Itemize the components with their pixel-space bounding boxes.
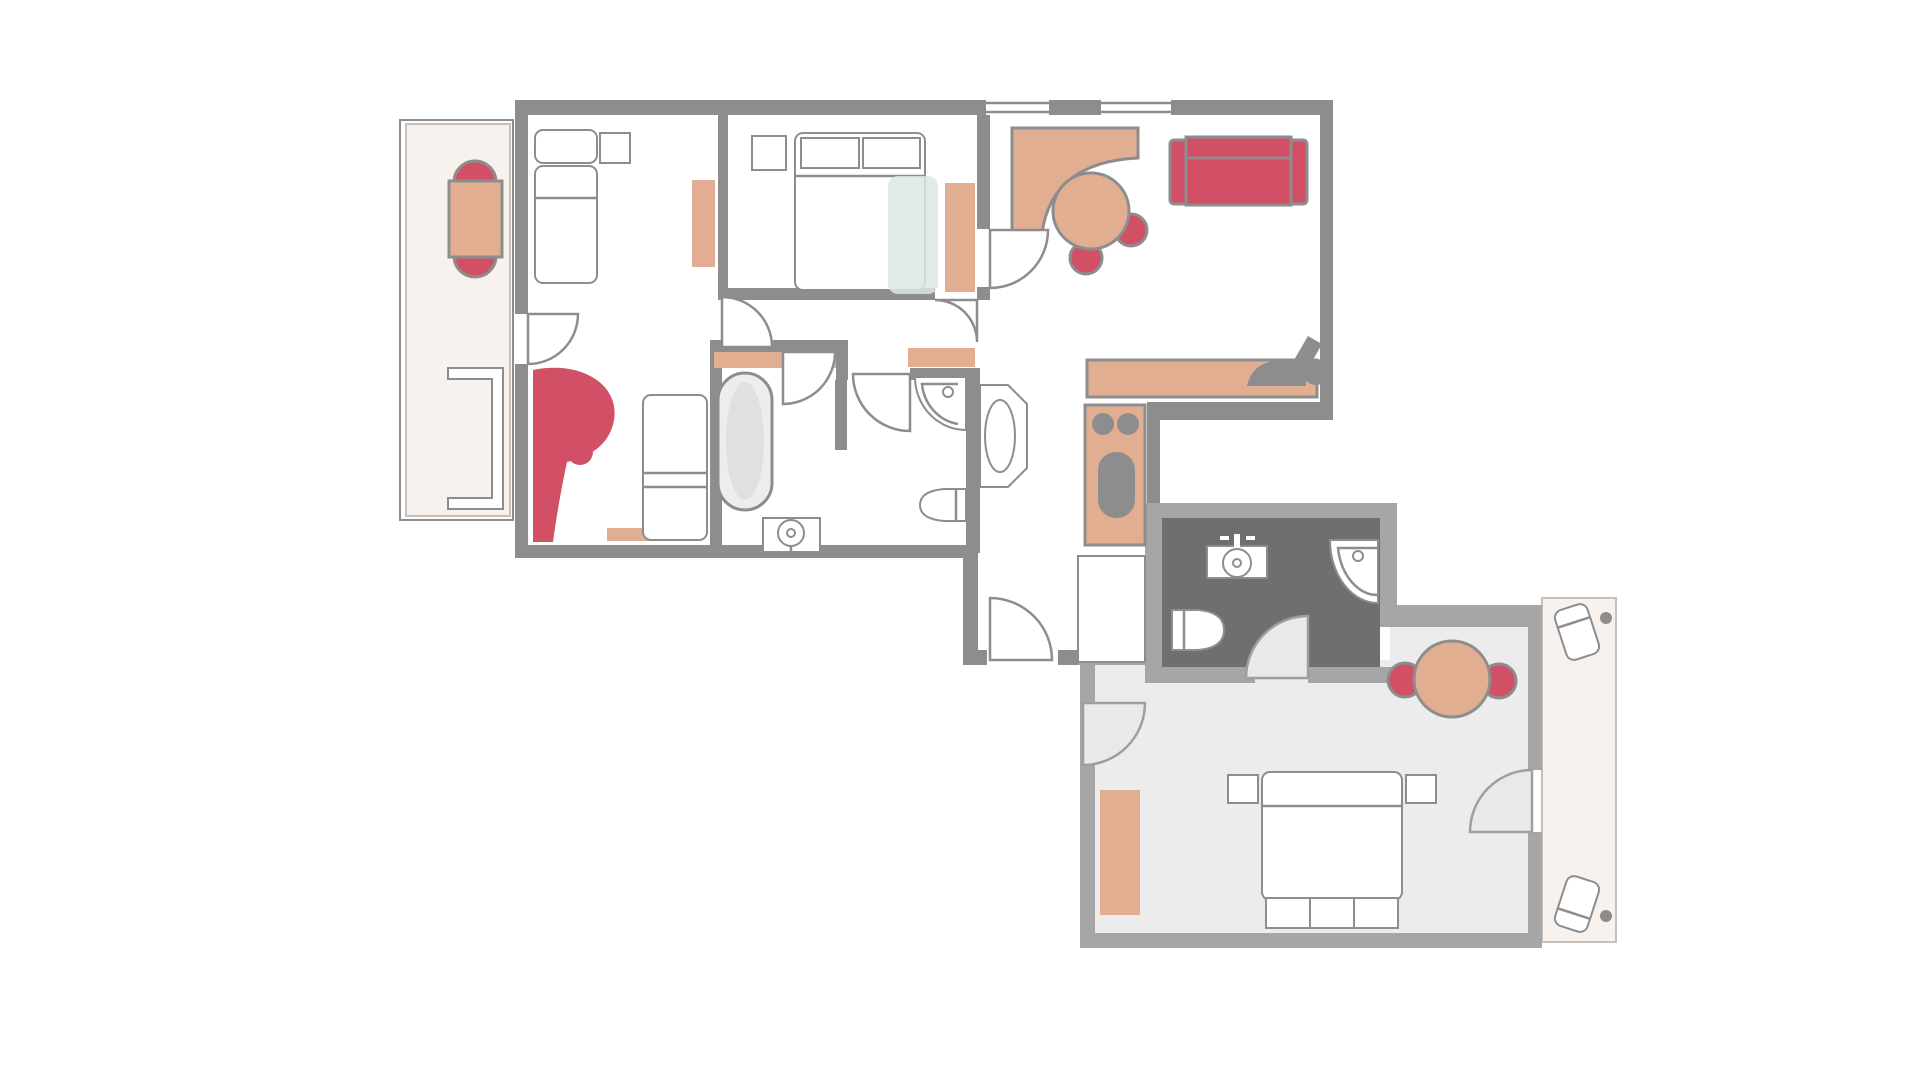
wall-segment — [1308, 667, 1397, 683]
pillow-icon — [801, 138, 859, 168]
shower-icon — [915, 377, 966, 430]
round-table-icon — [1053, 173, 1129, 249]
wall-segment — [1528, 832, 1542, 948]
door-entry-upper — [990, 598, 1052, 660]
window-icon — [1101, 100, 1171, 115]
floor-plan-drawing — [0, 0, 1920, 1080]
bathtub-icon — [718, 373, 772, 510]
floor-plan-canvas — [0, 0, 1920, 1080]
nightstand-icon — [1228, 775, 1258, 803]
pillow-icon — [863, 138, 920, 168]
bench-icon — [1354, 898, 1398, 928]
wall-segment — [1049, 100, 1101, 115]
wall-segment — [1162, 667, 1255, 683]
side-table-icon — [1600, 612, 1612, 624]
toilet-icon — [920, 489, 966, 521]
wall-segment — [1147, 402, 1333, 420]
wall-segment — [718, 115, 728, 297]
nightstand-icon — [600, 133, 630, 163]
throw-blanket-icon — [888, 176, 938, 294]
toilet-icon — [1172, 610, 1224, 650]
wall-segment — [1380, 518, 1397, 613]
wall-segment — [1380, 605, 1528, 627]
kitchen-unit — [1085, 405, 1145, 545]
entry-closet — [1078, 556, 1145, 662]
wall-segment — [515, 100, 986, 115]
dining-table-icon — [449, 181, 502, 257]
bench-icon — [1310, 898, 1354, 928]
hallway-elements — [908, 348, 975, 367]
wall-segment — [1080, 652, 1095, 948]
living-room-furniture — [1012, 128, 1329, 397]
bed-icon — [535, 130, 597, 283]
rug-icon — [945, 183, 975, 292]
wall-segment — [977, 287, 990, 300]
wall-segment — [963, 545, 978, 652]
side-table-icon — [1600, 910, 1612, 922]
wall-segment — [515, 545, 975, 558]
terrace-lower — [1542, 598, 1616, 942]
wall-segment — [1080, 933, 1542, 948]
wall-segment — [977, 115, 990, 229]
round-table-icon — [1414, 641, 1490, 717]
bed-icon — [643, 395, 707, 540]
accent-chair-icon — [567, 439, 593, 465]
door-balcony — [528, 314, 578, 364]
wall-segment — [966, 368, 980, 553]
door-living-room — [990, 230, 1048, 288]
bedroom-2-furniture — [752, 133, 975, 294]
wall-segment — [1058, 650, 1080, 665]
wall-segment — [515, 364, 528, 558]
nightstand-icon — [752, 136, 786, 170]
rug-icon — [692, 180, 715, 267]
wall-segment — [1171, 100, 1333, 115]
nightstand-icon — [1406, 775, 1436, 803]
door-bathtub-area — [783, 352, 835, 404]
rug-icon — [908, 348, 975, 367]
wall-segment — [836, 340, 848, 380]
door-bedroom-1 — [722, 297, 772, 347]
washbasin-bay-icon — [980, 385, 1027, 487]
sink-icon — [1098, 452, 1135, 518]
rug-icon — [1100, 790, 1140, 915]
window-icon — [986, 100, 1049, 115]
door-bedroom-2-hall — [935, 300, 977, 342]
burner-icon — [1117, 413, 1139, 435]
burner-icon — [1092, 413, 1114, 435]
wall-segment — [963, 650, 987, 665]
wall-segment — [1150, 503, 1397, 518]
wall-segment — [835, 380, 847, 450]
bench-icon — [1266, 898, 1310, 928]
sofa-icon — [1170, 137, 1307, 205]
wall-segment — [1528, 605, 1542, 770]
washbasin-icon — [763, 518, 820, 556]
wall-segment — [515, 100, 528, 314]
door-bathroom-main — [853, 374, 910, 431]
